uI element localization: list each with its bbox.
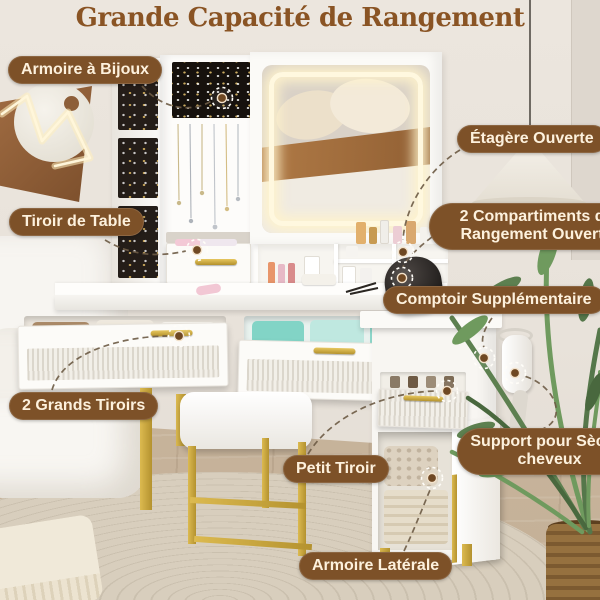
label-compartiments: 2 Compartiments de Rangement Ouverts (429, 203, 600, 250)
target-small-drawer (437, 381, 458, 402)
target-hairdryer (505, 363, 526, 384)
label-comptoir: Comptoir Supplémentaire (383, 286, 600, 314)
label-tiroir-de-table: Tiroir de Table (9, 208, 144, 236)
label-petit-tiroir: Petit Tiroir (283, 455, 389, 483)
label-support-seche-cheveux: Support pour Sèche-cheveux (457, 428, 600, 475)
label-etagere-ouverte: Étagère Ouverte (457, 125, 600, 153)
neon-light-squiggle (2, 96, 90, 166)
target-counter (474, 348, 495, 369)
target-large-drawers (169, 326, 190, 347)
tweezers (346, 283, 378, 294)
target-side-cabinet (422, 468, 443, 489)
label-grands-tiroirs: 2 Grands Tiroirs (9, 392, 158, 420)
target-earring-panel (212, 88, 233, 109)
label-armoire-laterale: Armoire Latérale (299, 552, 452, 580)
label-armoire-bijoux: Armoire à Bijoux (8, 56, 162, 84)
target-open-shelf (393, 242, 414, 263)
hanging-necklaces (177, 124, 240, 229)
page-title: Grande Capacité de Rangement (0, 3, 600, 33)
target-table-drawer (187, 240, 208, 261)
annotated-product-image: Grande Capacité de Rangement Armoire à B… (0, 0, 600, 600)
